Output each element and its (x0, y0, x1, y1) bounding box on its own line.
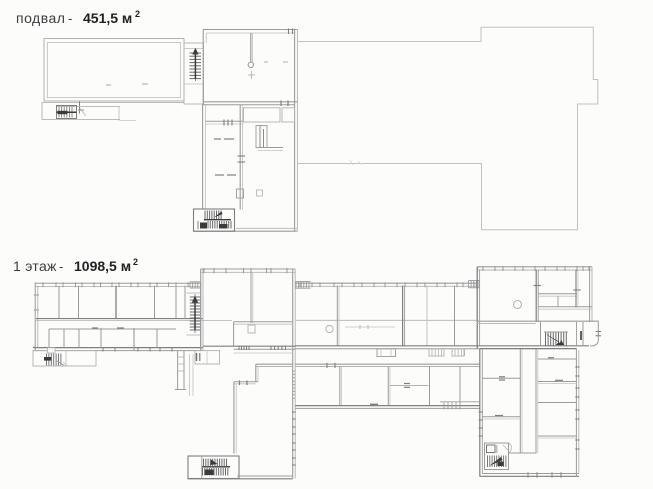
svg-text:1 этаж: 1 этаж (13, 258, 57, 274)
svg-text:451,5 м: 451,5 м (83, 10, 132, 26)
svg-text:2: 2 (133, 257, 138, 267)
svg-text:2: 2 (135, 9, 140, 19)
svg-text:1098,5 м: 1098,5 м (74, 258, 131, 274)
svg-text:подвал: подвал (16, 10, 65, 26)
svg-text:-: - (59, 259, 63, 274)
svg-text:-: - (68, 11, 72, 26)
